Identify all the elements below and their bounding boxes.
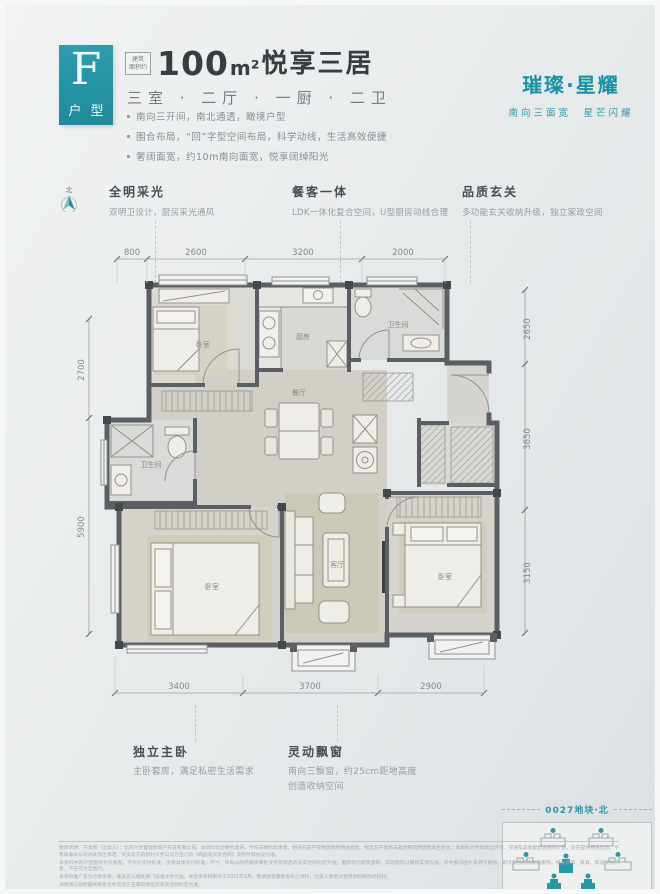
room-label: 卧室 [205,582,219,591]
washbasin-icon [403,335,439,351]
dim-left-1: 5900 [77,516,87,538]
toilet-icon [165,427,189,435]
sofa-icon [285,511,295,609]
dim-bottom-1: 3700 [299,682,321,692]
disclaimer-line: 详情请以政府最终审批文件及双方签署的商品房买卖合同约定为准。 [59,883,619,890]
note-bay-window: 灵动飘窗 南向三飘窗，约25cm距地高度 创造收纳空间 [288,743,417,794]
room-label: 卫生间 [388,320,409,329]
dim-top-0: 800 [124,248,140,258]
room-label: 卫生间 [141,460,162,469]
feature-title: 全明采光 [109,183,279,200]
bay-window-icon [290,643,357,671]
area-tag-line2: 面积约 [129,64,147,72]
room-label: 厨房 [296,332,310,341]
room-label: 餐厅 [292,388,306,397]
feature-desc: 多功能玄关收纳升级，独立家政空间 [462,206,647,218]
note-master-suite: 独立主卧 主卧套房，满足私密生活需求 [133,743,254,779]
layout-line: 三室 · 二厅 · 一厨 · 二卫 [127,87,392,108]
dim-left-0: 2700 [77,359,87,381]
disclaimer-line: 本资料中的户型图仅为示意图，不作为交付标准，房屋具体交付标准、尺寸、布局以政府最… [59,861,619,875]
dim-bottom-2: 2900 [420,682,442,692]
dash-rule [614,809,652,810]
disclaimer: 免责声明：开发商（出卖人）：北京兴创置地房地产开发有限公司。本资料仅为要约邀请，… [59,841,619,891]
armchair-icon [319,601,349,623]
selling-point: 奢阔面宽，约10m南向面宽，悦享阔绰阳光 [127,149,387,163]
dim-top-3: 2000 [392,248,414,258]
compass-label: 北 [57,184,81,194]
floorplan-flyer-page: F 户型 建筑 面积约 100 m² 悦享三居 三室 · 二厅 · 一厨 · 二… [0,0,660,894]
brand-block: 璀璨·星耀 南向三面宽 星芒闪耀 [495,69,647,119]
disclaimer-line: 免责声明：开发商（出卖人）：北京兴创置地房地产开发有限公司。本资料仅为要约邀请，… [59,846,619,860]
stove-icon [259,311,279,357]
selling-points: 南向三开间，南北通透，瞰境户型 围合布局，“回”字型空间布局，科学动线，生活高效… [127,109,387,169]
brand-name: 璀璨·星耀 [495,69,647,98]
disclaimer-line: 本项目推广名为示意名称，备案名以相关部门核准文件为准。本宣传资料制作于2021年… [59,875,619,882]
room-label: 卧室 [438,572,452,581]
toilet-icon [355,289,371,297]
feature-desc: 双明卫设计，厨房采光通风 [109,206,279,218]
feature-foyer: 品质玄关 多功能玄关收纳升级，独立家政空间 [462,183,647,218]
selling-point: 围合布局，“回”字型空间布局，科学动线，生活高效便捷 [127,129,387,143]
dim-top-1: 2600 [185,248,207,258]
dim-top-2: 3200 [292,248,314,258]
feature-title: 品质玄关 [462,183,647,200]
room-label: 卧室 [196,340,210,349]
dim-right-1: 3650 [523,428,533,450]
sitemap-title: 0027地块·北 [540,803,613,816]
type-label: 户型 [68,100,112,119]
dash-rule [502,809,540,810]
note-desc: 主卧套房，满足私密生活需求 [133,765,254,779]
north-arrow-icon [60,194,78,212]
dim-right-2: 3150 [523,562,533,584]
brand-slogan: 南向三面宽 星芒闪耀 [495,105,647,119]
dim-right-0: 2650 [523,318,533,340]
note-title: 灵动飘窗 [288,743,417,760]
area-tag: 建筑 面积约 [125,52,151,75]
area-unit: m² [230,56,260,80]
armchair-icon [319,493,345,513]
feature-lighting: 全明采光 双明卫设计，厨房采光通风 [109,183,279,218]
bay-window-icon [427,633,497,659]
sitemap-title-row: 0027地块·北 [502,803,652,816]
note-desc: 创造收纳空间 [288,780,417,794]
note-title: 独立主卧 [133,743,254,760]
area-tag-line1: 建筑 [132,56,144,64]
area-number: 100 [157,47,229,81]
coffee-table-icon [323,533,349,587]
dim-bottom-0: 3400 [168,682,190,692]
page-title: 悦享三居 [262,43,374,80]
title-row: 建筑 面积约 100 m² 悦享三居 [125,43,374,81]
compass: 北 [57,184,81,216]
note-desc: 南向三飘窗，约25cm距地高度 [288,765,417,779]
selling-point: 南向三开间，南北通透，瞰境户型 [127,109,387,123]
washbasin-icon [111,465,131,495]
room-label: 客厅 [330,560,344,569]
type-badge: F 户型 [59,45,113,125]
type-letter: F [71,47,102,93]
floorplan-svg: 卧室 厨房 卫生间 餐厅 卫生间 客厅 卧室 卧室 [67,245,557,715]
